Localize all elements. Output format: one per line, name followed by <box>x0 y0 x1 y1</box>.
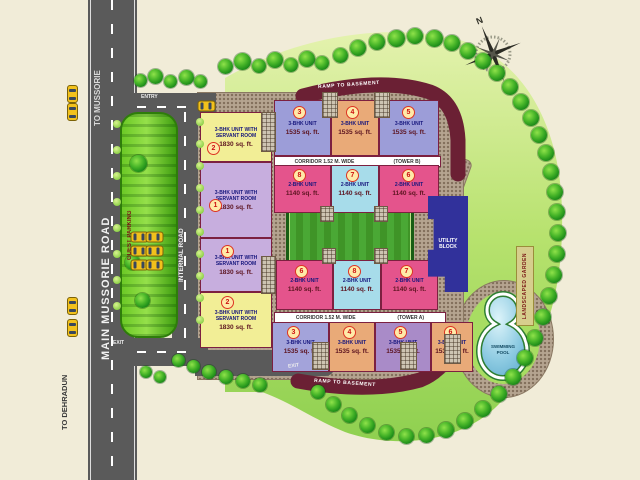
tree-icon <box>475 401 491 417</box>
bush-icon <box>196 140 204 148</box>
unit-number-badge: 6 <box>402 169 415 182</box>
tree-icon <box>135 293 150 308</box>
tree-icon <box>547 184 563 200</box>
unit-area-label: 1140 sq. ft. <box>393 286 426 293</box>
bush-icon <box>196 228 204 236</box>
unit-type-label: 3-BHK UNIT <box>288 121 316 127</box>
tree-icon <box>194 75 207 88</box>
tower-b-name: (TOWER B) <box>394 159 421 165</box>
bush-icon <box>113 172 121 180</box>
unit-type-label: 3-BHK UNIT WITH SERVANT ROOM <box>207 255 265 267</box>
unit-type-label: 2-BHK UNIT <box>395 278 423 284</box>
stairwell-block <box>374 206 388 222</box>
tree-icon <box>179 70 194 85</box>
tree-icon <box>315 56 329 70</box>
unit-block: 4 3-BHK UNIT 1535 sq. ft. <box>331 100 379 156</box>
bush-icon <box>196 316 204 324</box>
unit-number-badge: 1 <box>209 199 222 212</box>
unit-number-badge: 2 <box>221 296 234 309</box>
tree-icon <box>444 35 460 51</box>
tree-icon <box>164 75 177 88</box>
compass-north-label: N <box>475 15 485 27</box>
tree-icon <box>543 164 559 180</box>
bush-icon <box>196 206 204 214</box>
stairwell-block <box>320 206 334 222</box>
landscaped-garden-tag: LANDSCAPED GARDEN <box>516 246 534 326</box>
tree-icon <box>419 428 434 443</box>
unit-number-badge: 5 <box>394 326 407 339</box>
car-icon <box>67 103 78 121</box>
tree-icon <box>538 145 554 161</box>
entry-road-dashes <box>137 106 197 108</box>
stairwell-block <box>374 92 390 118</box>
car-icon <box>198 101 216 112</box>
utility-block-label: UTILITY BLOCK <box>433 238 463 250</box>
bush-icon <box>196 184 204 192</box>
bush-icon <box>196 272 204 280</box>
tree-icon <box>549 204 565 220</box>
stairwell-block <box>322 92 338 118</box>
tree-icon <box>148 69 163 84</box>
tree-icon <box>219 370 233 384</box>
unit-type-label: 3-BHK UNIT WITH SERVANT ROOM <box>207 127 265 139</box>
stairwell-block <box>400 342 417 370</box>
unit-type-label: 2-BHK UNIT <box>288 182 316 188</box>
tree-icon <box>333 48 348 63</box>
tree-icon <box>505 369 521 385</box>
car-icon <box>67 85 78 103</box>
tree-icon <box>236 374 250 388</box>
bush-icon <box>113 146 121 154</box>
internal-road-label: INTERNAL ROAD <box>178 192 185 282</box>
unit-area-label: 1535 sq. ft. <box>392 129 426 136</box>
tree-icon <box>311 385 325 399</box>
tree-icon <box>527 330 543 346</box>
bush-icon <box>196 294 204 302</box>
car-icon <box>146 246 164 257</box>
tree-icon <box>407 28 423 44</box>
stairwell-block <box>261 256 276 294</box>
corridor-width-label: CORRIDOR 1.52 M. WIDE <box>296 315 356 321</box>
unit-type-label: 3-BHK UNIT <box>338 340 366 346</box>
unit-block: 8 2-BHK UNIT 1140 sq. ft. <box>333 260 381 310</box>
tree-icon <box>360 418 375 433</box>
unit-type-label: 2-BHK UNIT <box>343 278 371 284</box>
tower-a-name: (TOWER A) <box>397 315 424 321</box>
tree-icon <box>140 366 152 378</box>
tree-icon <box>549 246 565 262</box>
unit-number-badge: 7 <box>346 169 359 182</box>
tree-icon <box>399 429 414 444</box>
unit-type-label: 2-BHK UNIT <box>341 182 369 188</box>
tree-icon <box>267 52 283 68</box>
unit-block: 6 2-BHK UNIT 1140 sq. ft. <box>276 260 333 310</box>
bush-icon <box>113 250 121 258</box>
bush-icon <box>113 276 121 284</box>
bush-icon <box>113 120 121 128</box>
bush-icon <box>196 162 204 170</box>
tree-icon <box>202 365 216 379</box>
bush-icon <box>113 224 121 232</box>
unit-number-badge: 8 <box>348 265 361 278</box>
tree-icon <box>550 225 566 241</box>
unit-number-badge: 3 <box>287 326 300 339</box>
tree-icon <box>172 354 185 367</box>
unit-type-label: 2-BHK UNIT <box>395 182 423 188</box>
tree-icon <box>426 30 443 47</box>
unit-block: 1 3-BHK UNIT WITH SERVANT ROOM 1830 sq. … <box>200 162 272 238</box>
unit-number-badge: 4 <box>343 326 356 339</box>
guest-parking-label: GUEST PARKING <box>127 186 133 260</box>
unit-area-label: 1830 sq. ft. <box>219 324 253 331</box>
tree-icon <box>369 34 385 50</box>
tree-icon <box>535 309 551 325</box>
tree-icon <box>350 40 366 56</box>
tree-icon <box>491 386 507 402</box>
tree-icon <box>252 59 266 73</box>
unit-area-label: 1535 sq. ft. <box>338 129 372 136</box>
unit-area-label: 1830 sq. ft. <box>219 141 253 148</box>
unit-number-badge: 1 <box>221 245 234 258</box>
stairwell-block <box>322 248 336 264</box>
tree-icon <box>438 422 454 438</box>
to-mussorie-label: TO MUSSORIE <box>93 26 102 126</box>
stairwell-block <box>261 112 276 152</box>
stairwell-block <box>374 248 388 264</box>
tree-icon <box>502 79 518 95</box>
bush-icon <box>196 118 204 126</box>
exit-road-dashes <box>137 351 195 353</box>
unit-area-label: 1535 sq. ft. <box>335 348 369 355</box>
unit-type-label: 3-BHK UNIT <box>341 121 369 127</box>
tree-icon <box>489 65 505 81</box>
tree-icon <box>284 58 298 72</box>
tree-icon <box>299 51 315 67</box>
unit-number-badge: 4 <box>346 106 359 119</box>
pool-label-line2: POOL <box>497 350 510 355</box>
tree-icon <box>475 53 491 69</box>
bush-icon <box>196 250 204 258</box>
unit-block: 2 3-BHK UNIT WITH SERVANT ROOM 1830 sq. … <box>200 292 272 348</box>
road-edge-line <box>134 366 135 480</box>
entry-label: ENTRY <box>141 94 158 100</box>
stairwell-block <box>444 334 461 364</box>
unit-area-label: 1140 sq. ft. <box>286 190 319 197</box>
unit-area-label: 1140 sq. ft. <box>288 286 321 293</box>
stairwell-block <box>312 342 329 370</box>
unit-number-badge: 2 <box>207 142 220 155</box>
unit-area-label: 1140 sq. ft. <box>338 190 371 197</box>
unit-number-badge: 7 <box>400 265 413 278</box>
unit-number-badge: 6 <box>295 265 308 278</box>
unit-area-label: 1830 sq. ft. <box>219 204 253 211</box>
tree-icon <box>517 350 533 366</box>
tree-icon <box>546 267 562 283</box>
unit-number-badge: 3 <box>293 106 306 119</box>
car-icon <box>67 297 78 315</box>
tree-icon <box>460 43 476 59</box>
unit-area-label: 1140 sq. ft. <box>392 190 425 197</box>
tree-icon <box>531 127 547 143</box>
exit-label: EXIT <box>113 340 124 346</box>
unit-block: 7 2-BHK UNIT 1140 sq. ft. <box>331 165 379 213</box>
tree-icon <box>457 413 473 429</box>
unit-block: 4 3-BHK UNIT 1535 sq. ft. <box>329 322 375 372</box>
tree-icon <box>253 378 267 392</box>
car-icon <box>146 232 164 243</box>
unit-type-label: 2-BHK UNIT <box>290 278 318 284</box>
tree-icon <box>342 408 357 423</box>
bush-icon <box>113 198 121 206</box>
bush-icon <box>113 302 121 310</box>
main-mussorie-road-label: MAIN MUSSORIE ROAD <box>100 140 112 360</box>
tree-icon <box>541 288 557 304</box>
tree-icon <box>379 425 394 440</box>
road-edge-line <box>90 0 91 480</box>
pool-label-line1: SWIMMING <box>491 344 515 349</box>
tree-icon <box>326 397 341 412</box>
site-plan: PARK CORRIDOR 1.52 M. WIDE (TOWER B) 2 3… <box>0 0 640 480</box>
unit-type-label: 3-BHK UNIT <box>286 340 314 346</box>
unit-number-badge: 5 <box>402 106 415 119</box>
tree-icon <box>130 155 147 172</box>
unit-type-label: 3-BHK UNIT <box>395 121 423 127</box>
car-icon <box>146 260 164 271</box>
unit-area-label: 1830 sq. ft. <box>219 269 253 276</box>
tree-icon <box>388 30 405 47</box>
tree-icon <box>523 110 539 126</box>
corridor-width-label: CORRIDOR 1.52 M. WIDE <box>295 159 355 165</box>
unit-type-label: 3-BHK UNIT WITH SERVANT ROOM <box>207 310 265 322</box>
unit-area-label: 1140 sq. ft. <box>340 286 373 293</box>
tree-icon <box>134 74 147 87</box>
tree-icon <box>513 94 529 110</box>
tree-icon <box>154 371 166 383</box>
landscaped-garden-label: LANDSCAPED GARDEN <box>522 253 528 319</box>
unit-number-badge: 8 <box>293 169 306 182</box>
unit-area-label: 1535 sq. ft. <box>286 129 320 136</box>
tree-icon <box>187 360 200 373</box>
to-dehradun-label: TO DEHRADUN <box>60 330 69 430</box>
tree-icon <box>218 59 233 74</box>
tree-icon <box>234 53 251 70</box>
